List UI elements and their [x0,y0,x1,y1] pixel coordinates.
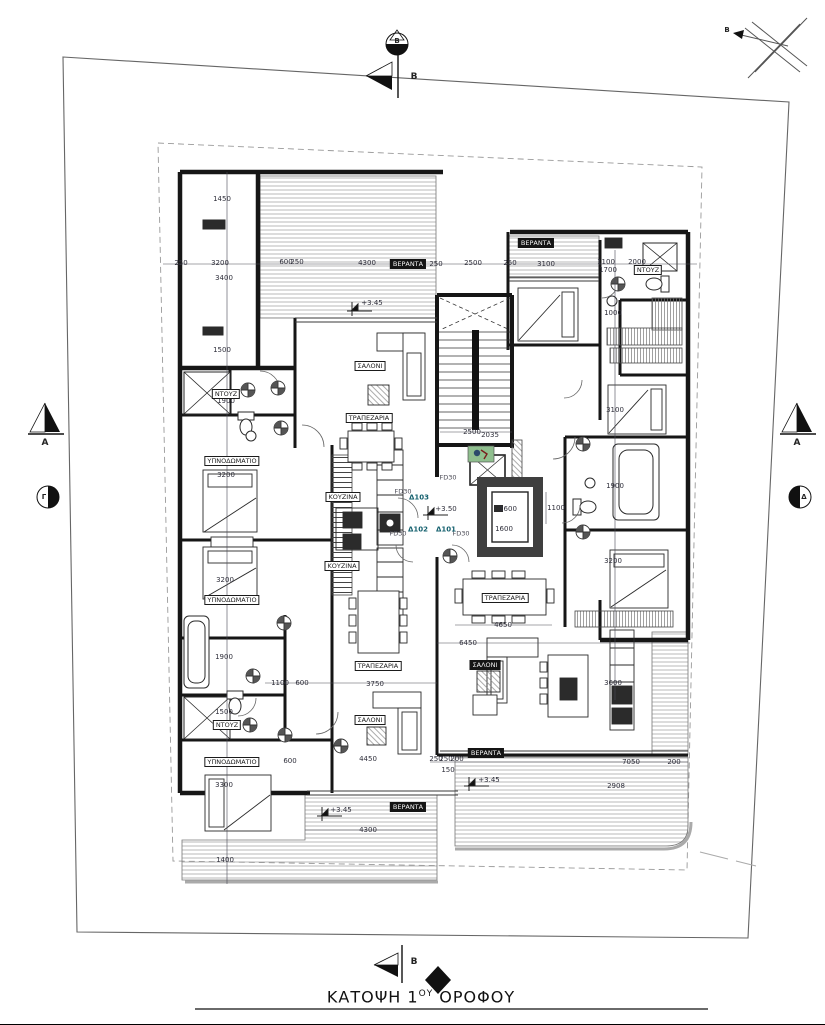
section-top-letter: B [411,72,418,82]
level-label: +3.45 [478,776,499,784]
circle-top-letter: Β [394,37,399,45]
level-label: +3.45 [330,806,351,814]
floor-plan-sheet: 2503200600250430025025002503100110017002… [0,0,825,1025]
north-letter: Β [724,26,729,34]
section-left-letter: A [42,438,49,448]
circle-right-letter: Δ [801,493,806,501]
level-label: +3.45 [361,299,382,307]
drawing-title: ΚΑΤΟΨΗ 1ΟΥ ΟΡΟΦΟΥ [327,988,515,1007]
level-layer: +3.45+3.50+3.45+3.45 [0,0,825,1024]
section-right-letter: A [794,438,801,448]
circle-left-letter: Γ [42,493,46,501]
section-bottom-letter: B [411,957,418,967]
level-label: +3.50 [435,505,456,513]
